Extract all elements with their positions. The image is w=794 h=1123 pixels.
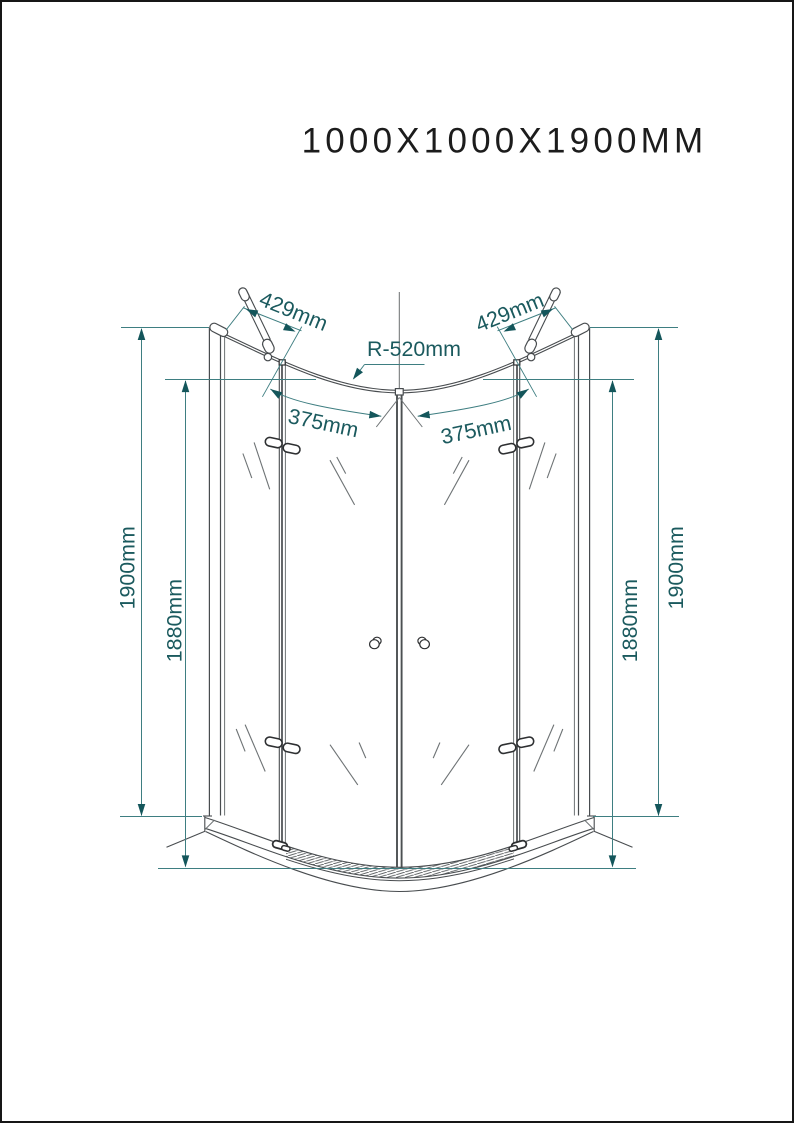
svg-text:1900mm: 1900mm (664, 526, 688, 609)
svg-text:1880mm: 1880mm (618, 579, 642, 662)
svg-text:1000X1000X1900MM: 1000X1000X1900MM (302, 122, 708, 161)
svg-text:1900mm: 1900mm (116, 526, 140, 609)
svg-text:R-520mm: R-520mm (367, 337, 461, 361)
svg-text:1880mm: 1880mm (162, 579, 186, 662)
